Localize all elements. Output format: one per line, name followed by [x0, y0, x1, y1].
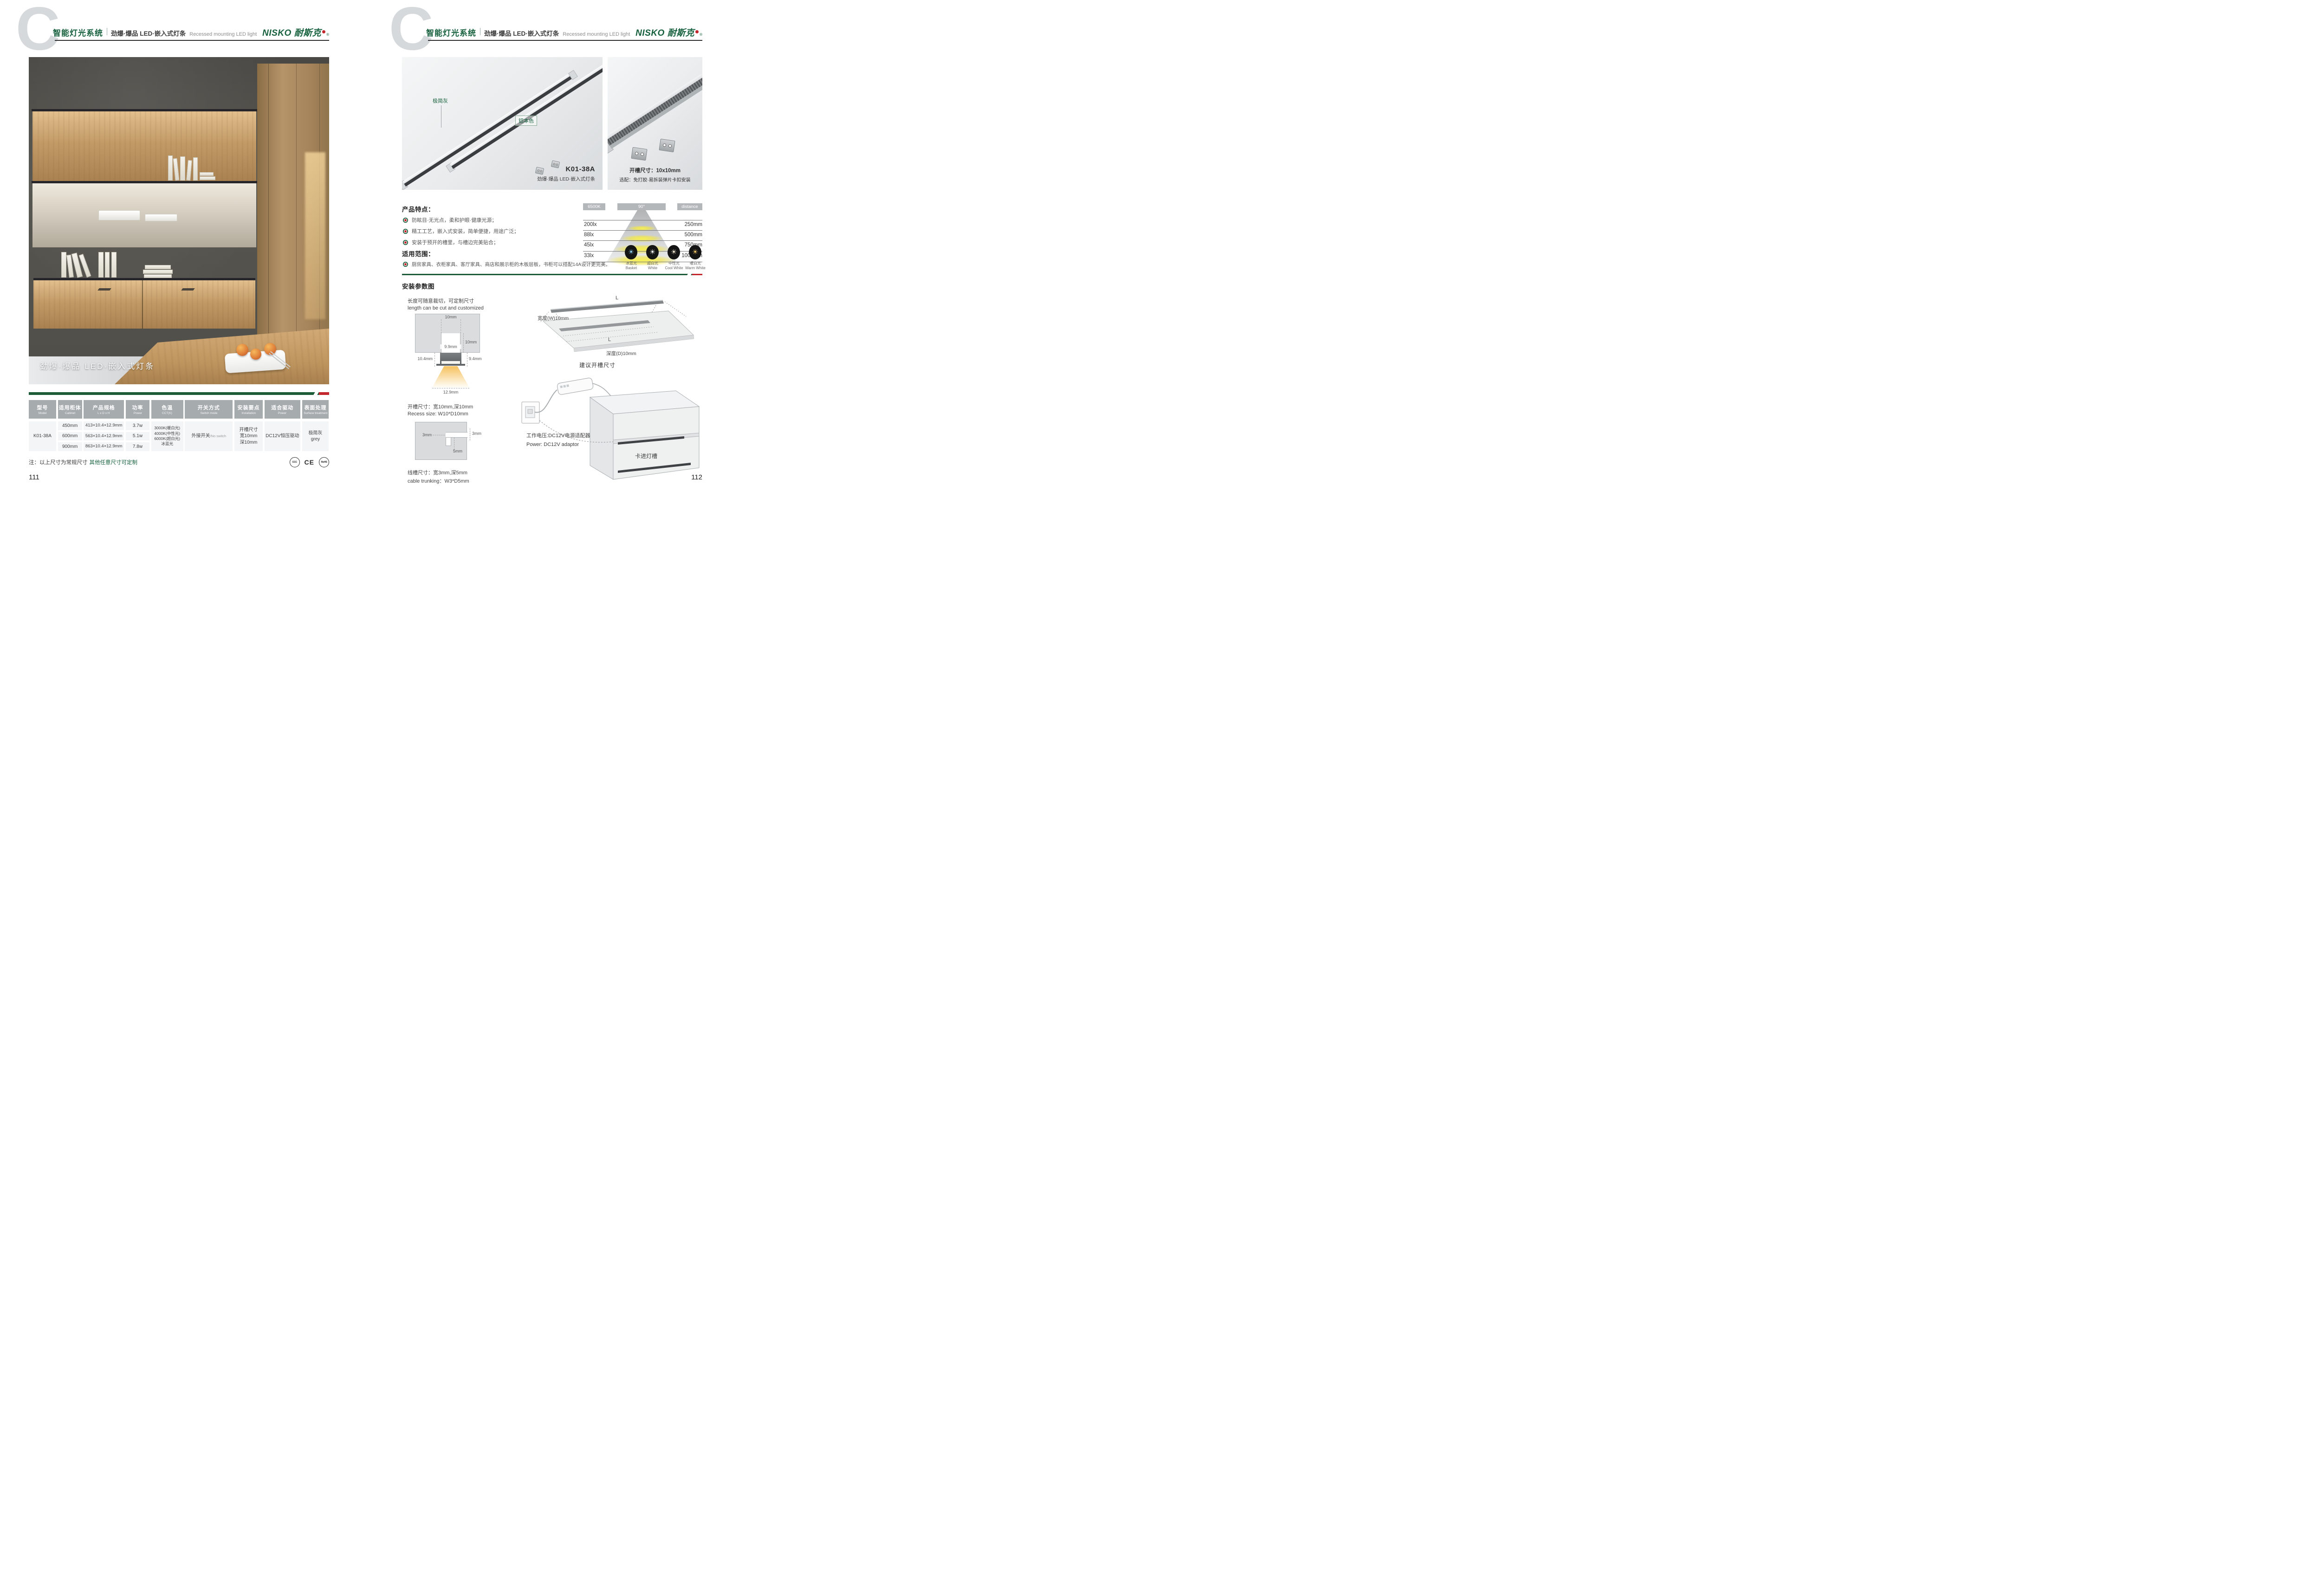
- dim-guide: [454, 438, 454, 450]
- power-cabinet-drawing: [518, 370, 702, 484]
- light-color-icon-cool-white: ☀: [668, 245, 680, 259]
- catalog-spread: C 智能灯光系统 劲爆·爆品 LED·嵌入式灯条 Recessed mounti…: [0, 0, 730, 499]
- profile-flange: [436, 364, 465, 366]
- logo-red-dot-icon: [695, 30, 699, 33]
- page-number-left: 111: [29, 473, 39, 481]
- led-strip-aluminum: [450, 57, 603, 169]
- spec-table: 型号Model 适用柜体Cabinet 产品规格L x D x H 功率Powe…: [29, 400, 329, 451]
- light-color-icon-warm-white: ☀: [689, 245, 701, 259]
- dim-right-height: 9.4mm: [469, 356, 482, 361]
- book: [143, 270, 173, 274]
- sun-icon: ☀: [692, 249, 698, 256]
- option-caption: 选配：免打胶·易拆装弹片卡扣安装: [608, 176, 702, 183]
- col-header: 适合驱动Power: [265, 400, 300, 419]
- header-rule: [428, 40, 702, 41]
- power-voltage-zh: 工作电压:DC12V电源适配器: [526, 432, 590, 439]
- book: [180, 156, 185, 181]
- cct-cell: 3000K(暖白光) 4000K(中性光) 6000K(超白光) 冰蓝光: [151, 421, 183, 451]
- chart-gridline: [583, 230, 702, 231]
- length-label-inner: L: [608, 337, 611, 342]
- dim-guide: [441, 319, 441, 333]
- rohs-mark-icon: RoHS: [319, 457, 329, 467]
- power-column: 3.7w 5.1w 7.8w: [126, 421, 149, 451]
- chart-gridline: [583, 240, 702, 241]
- table-cell: 7.8w: [126, 442, 149, 451]
- book: [105, 252, 110, 278]
- slot-caption: 建议开槽尺寸: [579, 361, 616, 369]
- product-photo-detail: 开槽尺寸：10x10mm 选配：免打胶·易拆装弹片卡扣安装: [608, 57, 702, 190]
- cut-note-en: length can be cut and customized: [408, 305, 484, 311]
- logo-text: NISKO 耐斯克: [262, 26, 321, 39]
- trunking-size-zh: 线槽尺寸：宽3mm,深5mm: [408, 469, 467, 476]
- model-subtitle: 劲爆·爆品 LED·嵌入式灯条: [537, 175, 595, 182]
- lux-label: 200lx: [584, 222, 607, 227]
- lux-label: 45lx: [584, 242, 607, 248]
- table-cell: 563×10.4×12.9mm: [84, 432, 124, 441]
- table-cell: 413×10.4×12.9mm: [84, 421, 124, 430]
- lit-wall-band: [32, 183, 256, 247]
- table-cell: 863×10.4×12.9mm: [84, 442, 124, 451]
- dim-guide: [470, 428, 470, 440]
- sun-icon: ☀: [628, 249, 634, 256]
- dim-entry: 3mm: [472, 431, 481, 436]
- book: [145, 265, 171, 269]
- install-section-title: 安装参数图: [402, 281, 434, 291]
- recess-size-zh: 开槽尺寸：宽10mm,深10mm: [408, 403, 473, 410]
- dim-inner-width: 9.9mm: [440, 344, 461, 349]
- power-and-cabinet-diagram: 工作电压:DC12V电源适配器 Power: DC12V adaptor 卡进灯…: [518, 370, 702, 484]
- color-mode-label: 暖白光Warm White: [681, 261, 710, 271]
- mounting-clip: [551, 160, 560, 168]
- width-label: 宽度(W)10mm: [538, 315, 569, 322]
- col-header: 功率Power: [126, 400, 149, 419]
- bullet-icon: [403, 229, 408, 234]
- trunking-size-en: cable trunking：W3*D5mm: [408, 477, 469, 485]
- distance-label: 500mm: [676, 232, 702, 238]
- drawer-gap: [142, 280, 143, 329]
- header-divider: [107, 28, 107, 35]
- led-strip-grey: [402, 73, 573, 187]
- recommended-slot-diagram: L 宽度(W)10mm L 深度(D)10mm 建议开槽尺寸: [538, 298, 702, 368]
- cut-note-zh: 长度可随意裁切，可定制尺寸: [408, 297, 474, 304]
- dim-beam-width: 12.9mm: [432, 390, 469, 394]
- product-photo-main: 极简灰 铝本色 K01-38A 劲爆·爆品 LED·嵌入式灯条: [402, 57, 603, 190]
- book: [168, 155, 173, 181]
- page-left: C 智能灯光系统 劲爆·爆品 LED·嵌入式灯条 Recessed mounti…: [29, 0, 329, 499]
- sideboard: [33, 280, 255, 329]
- cct-box: 6500K: [583, 203, 605, 210]
- brand-system-title: 智能灯光系统: [53, 26, 103, 38]
- sun-icon: ☀: [671, 249, 677, 256]
- book: [193, 157, 198, 181]
- registered-mark: ®: [326, 32, 329, 37]
- scope-title: 适用范围：: [402, 249, 434, 258]
- recess-size-en: Recess size: W10*D10mm: [408, 411, 468, 417]
- photo-cabinet-glow: [305, 152, 325, 319]
- logo-text: NISKO 耐斯克: [635, 26, 694, 39]
- table-cell: 600mm: [58, 432, 82, 441]
- book: [200, 172, 214, 176]
- scope-item: 厨房家具、衣柜家具、客厅家具、商店和展示柜的木板层板，书柜可以搭配14A设计更完…: [403, 261, 610, 268]
- trunking-leg: [446, 438, 451, 446]
- certification-marks: CCC CE RoHS: [290, 457, 329, 467]
- fruit: [264, 343, 276, 355]
- tray: [145, 214, 177, 221]
- series-title: 劲爆·爆品 LED·嵌入式灯条: [484, 28, 559, 38]
- book: [144, 274, 172, 278]
- header-divider: [480, 28, 480, 35]
- page-header: 智能灯光系统 劲爆·爆品 LED·嵌入式灯条 Recessed mounting…: [53, 26, 329, 37]
- table-cell: 450mm: [58, 421, 82, 430]
- col-header: 色温CCT(K): [151, 400, 183, 419]
- cable-trunking-diagram: 3mm 3mm 5mm: [410, 420, 503, 465]
- tray: [98, 210, 140, 220]
- ccc-mark-icon: CCC: [290, 457, 300, 467]
- dim-width: 3mm: [422, 433, 432, 437]
- installation-cell: 开槽尺寸 宽10mm 深10mm: [234, 421, 263, 451]
- page-header: 智能灯光系统 劲爆·爆品 LED·嵌入式灯条 Recessed mounting…: [426, 26, 702, 37]
- green-divider-bar: [402, 274, 702, 275]
- label-leader: [441, 105, 441, 128]
- dim-guide: [460, 319, 461, 333]
- lux-label: 33lx: [584, 253, 607, 258]
- finish-label-aluminum: 铝本色: [515, 116, 537, 126]
- book: [61, 252, 66, 278]
- spec-table-header-row: 型号Model 适用柜体Cabinet 产品规格L x D x H 功率Powe…: [29, 400, 329, 419]
- logo-red-dot-icon: [322, 30, 325, 33]
- green-accent-bar: [29, 392, 329, 395]
- dim-guide: [434, 353, 435, 367]
- trunking-entry: [446, 432, 467, 438]
- header-rule: [55, 40, 329, 41]
- driver-cell: DC12V恒压驱动: [265, 421, 300, 451]
- dim-left-height: 10.4mm: [410, 356, 433, 361]
- distance-box: distance: [677, 203, 702, 210]
- feature-item: 精工工艺，嵌入式安装，简单便捷，用途广泛；: [403, 227, 519, 235]
- feature-item: 防眩目·无光点，柔和护眼·健康光源；: [403, 216, 497, 224]
- dim-guide: [433, 435, 445, 435]
- model-code: K01-38A: [565, 165, 595, 173]
- dim-depth: 5mm: [453, 449, 462, 453]
- bullet-icon: [403, 218, 408, 223]
- aluminum-profile-closeup: [608, 74, 702, 149]
- col-header: 安装要点Installation: [234, 400, 263, 419]
- mounting-clip: [631, 147, 647, 161]
- finish-label-grey: 极简灰: [433, 97, 448, 104]
- slot-diagram-drawing: [538, 298, 702, 368]
- drawer-handle: [181, 288, 195, 291]
- drawer-handle: [97, 288, 111, 291]
- fruit: [250, 349, 261, 360]
- col-header: 适用柜体Cabinet: [58, 400, 82, 419]
- lux-label: 88lx: [584, 232, 607, 238]
- sun-icon: ☀: [649, 249, 655, 256]
- book: [111, 252, 117, 278]
- dim-guide: [432, 388, 469, 388]
- light-pool: [613, 245, 671, 254]
- col-header: 表面处理Surface treatment: [302, 400, 329, 419]
- photo-caption: 劲爆·爆品 LED·嵌入式灯条: [40, 360, 155, 371]
- table-cell: 5.1w: [126, 432, 149, 441]
- table-cell: 900mm: [58, 442, 82, 451]
- page-right: C 智能灯光系统 劲爆·爆品 LED·嵌入式灯条 Recessed mounti…: [402, 0, 702, 499]
- book: [200, 176, 215, 180]
- series-title-en: Recessed mounting LED light: [563, 32, 630, 37]
- distance-label: 250mm: [676, 222, 702, 227]
- mounting-clip: [659, 139, 675, 152]
- brand-system-title: 智能灯光系统: [426, 26, 476, 38]
- switch-cell: 外接开关/No switch: [185, 421, 233, 451]
- ce-mark-icon: CE: [305, 459, 314, 466]
- board-section: [415, 422, 467, 460]
- model-cell: K01-38A: [29, 421, 56, 451]
- col-header: 产品规格L x D x H: [84, 400, 124, 419]
- book: [98, 252, 104, 278]
- feature-item: 安装于预开的槽里，与槽边完美贴合；: [403, 239, 499, 246]
- power-voltage-en: Power: DC12V adaptor: [526, 442, 579, 447]
- spec-table-body: K01-38A 450mm 600mm 900mm 413×10.4×12.9m…: [29, 421, 329, 451]
- depth-label: 深度(D)10mm: [606, 350, 636, 357]
- col-header: 开关方式Switch mode: [185, 400, 233, 419]
- cabinet-column: 450mm 600mm 900mm: [58, 421, 82, 451]
- cross-section-diagram: 10mm 10mm 9.9mm 10.4mm 9.4mm 12.9mm: [410, 314, 503, 398]
- table-cell: 3.7w: [126, 421, 149, 430]
- spec-column: 413×10.4×12.9mm 563×10.4×12.9mm 863×10.4…: [84, 421, 124, 451]
- recess-notch: [441, 333, 460, 353]
- nisko-logo: NISKO 耐斯克 ®: [262, 26, 329, 39]
- nisko-logo: NISKO 耐斯克 ®: [635, 26, 702, 39]
- page-number-right: 112: [691, 473, 702, 481]
- surface-cell: 极简灰 grey: [302, 421, 329, 451]
- light-distribution-chart: 6500K 90° distance 200lx 88lx 45lx 33lx …: [583, 200, 702, 270]
- features-title: 产品特点：: [402, 204, 434, 213]
- clip-into-slot-label: 卡进灯槽: [635, 452, 657, 460]
- wood-shelf-band: [32, 111, 256, 182]
- registered-mark: ®: [700, 32, 702, 37]
- dim-guide: [463, 333, 464, 353]
- length-label-top: L: [616, 295, 618, 301]
- chart-gridline: [583, 251, 702, 252]
- beam-angle-box: 90°: [617, 203, 666, 210]
- dim-top-width: 10mm: [441, 315, 460, 319]
- dim-guide: [467, 353, 467, 367]
- series-title: 劲爆·爆品 LED·嵌入式灯条: [111, 28, 186, 38]
- light-color-icon-ice-blue: ☀: [625, 245, 637, 259]
- light-pool: [621, 235, 663, 242]
- size-note: 注：以上尺寸为常规尺寸 其他任意尺寸可定制 CCC CE RoHS: [29, 457, 329, 467]
- chart-gridline: [583, 220, 702, 220]
- dim-depth: 10mm: [465, 340, 477, 344]
- recess-size-caption: 开槽尺寸：10x10mm: [608, 167, 702, 174]
- col-header: 型号Model: [29, 400, 56, 419]
- lifestyle-photo: 劲爆·爆品 LED·嵌入式灯条: [29, 57, 329, 384]
- light-beam: [432, 366, 469, 388]
- fruit: [236, 344, 248, 356]
- mounting-clip: [535, 167, 545, 174]
- series-title-en: Recessed mounting LED light: [189, 32, 257, 37]
- bullet-icon: [403, 240, 408, 245]
- bullet-icon: [403, 262, 408, 267]
- light-color-icon-white: ☀: [646, 245, 659, 259]
